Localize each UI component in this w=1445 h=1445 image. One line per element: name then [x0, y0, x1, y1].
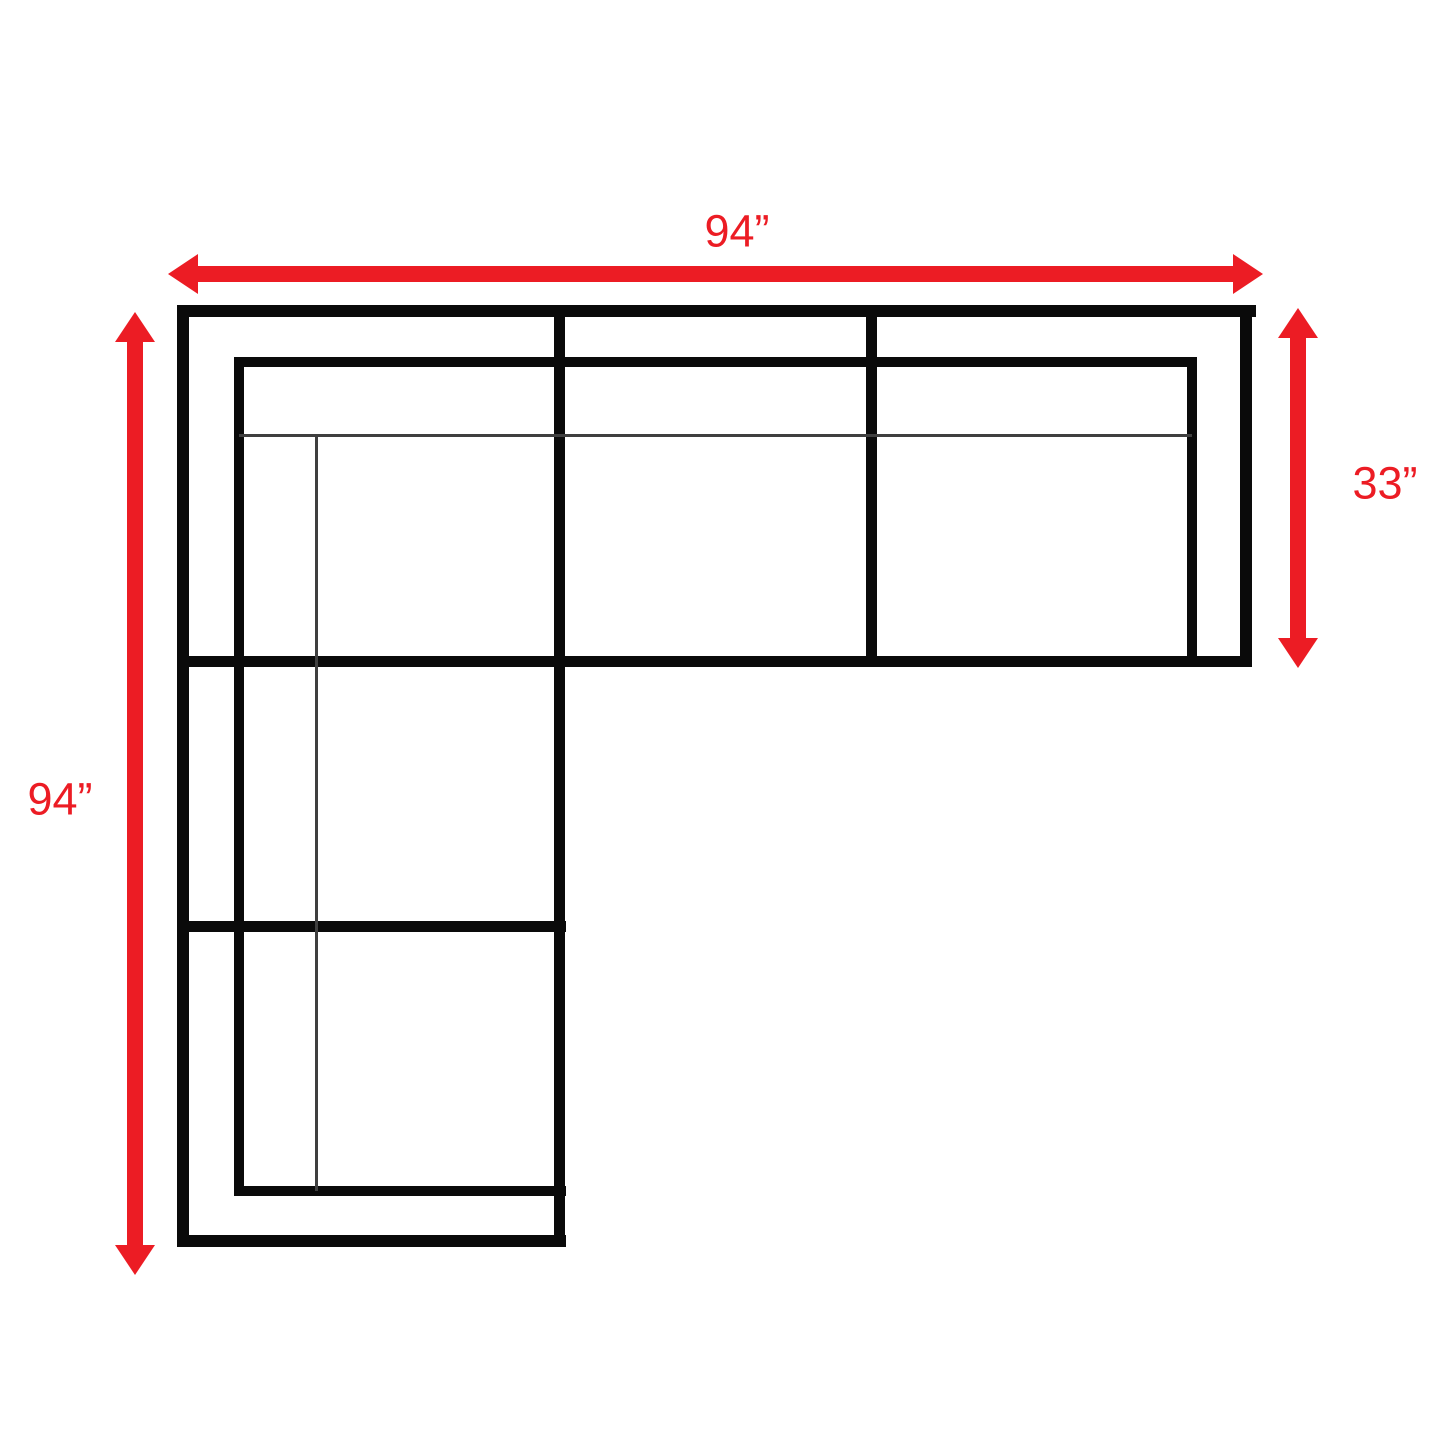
backrest-inner-top-edge — [234, 357, 1197, 367]
outer-left-edge — [177, 305, 189, 1247]
dimension-arrow-right-depth-shaft — [1290, 336, 1306, 640]
dimension-arrow-right-depth-head-bottom — [1278, 638, 1318, 668]
outer-bottom-edge — [177, 1235, 566, 1247]
dimension-arrow-top-width-head-right — [1233, 254, 1263, 294]
dimension-label-top-width: 94” — [704, 209, 769, 254]
sectional-sofa-floorplan-diagram: 94” 94” 33” — [0, 0, 1445, 1445]
outer-top-edge — [177, 305, 1256, 317]
bottom-arm-inner-edge — [234, 1186, 566, 1196]
dimension-arrow-left-depth-shaft — [127, 340, 143, 1247]
outer-right-edge — [1240, 305, 1252, 667]
backrest-inner-left-edge — [234, 357, 244, 1196]
dimension-arrow-top-width-head-left — [168, 254, 198, 294]
top-arm-front-edge — [177, 656, 1252, 667]
dimension-arrow-top-width-shaft — [196, 266, 1235, 282]
dimension-arrow-left-depth-head-top — [115, 312, 155, 342]
chaise-right-edge — [554, 305, 565, 1247]
back-cushion-line-horizontal — [239, 434, 1192, 437]
right-arm-inner-edge — [1187, 357, 1197, 667]
dimension-arrow-right-depth-head-top — [1278, 308, 1318, 338]
dimension-label-left-depth: 94” — [27, 777, 92, 822]
dimension-arrow-left-depth-head-bottom — [115, 1245, 155, 1275]
back-cushion-line-vertical — [315, 434, 318, 1191]
dimension-label-right-depth: 33” — [1352, 461, 1417, 506]
